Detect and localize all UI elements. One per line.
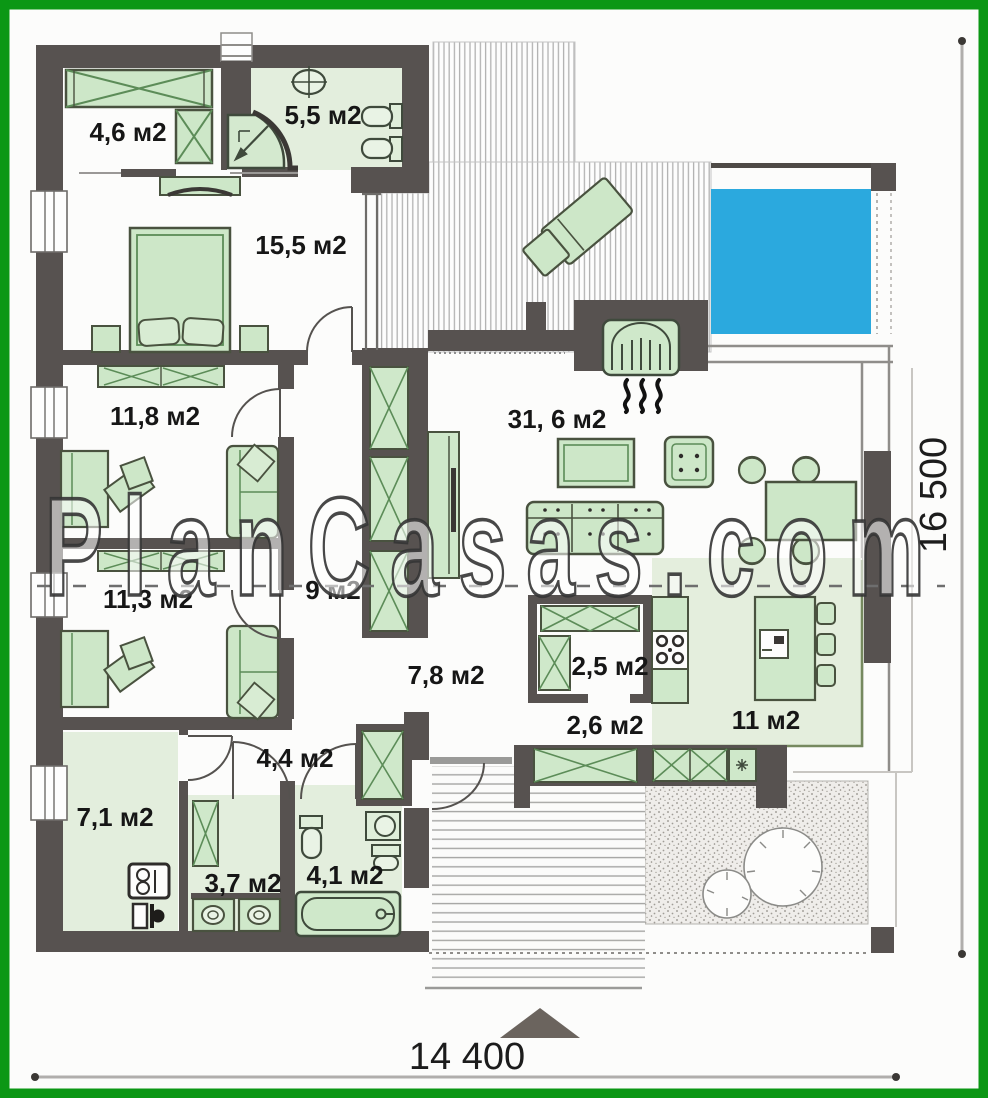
svg-text:PlanCasas.com: PlanCasas.com [45,469,945,625]
svg-text:31, 6 м2: 31, 6 м2 [508,404,607,434]
svg-text:11,8 м2: 11,8 м2 [110,401,200,431]
svg-text:3,7 м2: 3,7 м2 [204,868,281,898]
svg-text:2,5 м2: 2,5 м2 [571,651,648,681]
svg-text:5,5 м2: 5,5 м2 [284,100,361,130]
svg-text:4,6 м2: 4,6 м2 [89,117,166,147]
svg-text:7,1 м2: 7,1 м2 [76,802,153,832]
svg-text:15,5 м2: 15,5 м2 [255,230,347,260]
svg-text:16 500: 16 500 [913,437,955,553]
svg-text:4,4 м2: 4,4 м2 [256,743,333,773]
svg-text:2,6 м2: 2,6 м2 [566,710,643,740]
svg-text:14 400: 14 400 [409,1036,525,1078]
svg-text:4,1 м2: 4,1 м2 [306,860,383,890]
svg-text:7,8 м2: 7,8 м2 [407,660,484,690]
svg-text:11 м2: 11 м2 [732,705,800,735]
